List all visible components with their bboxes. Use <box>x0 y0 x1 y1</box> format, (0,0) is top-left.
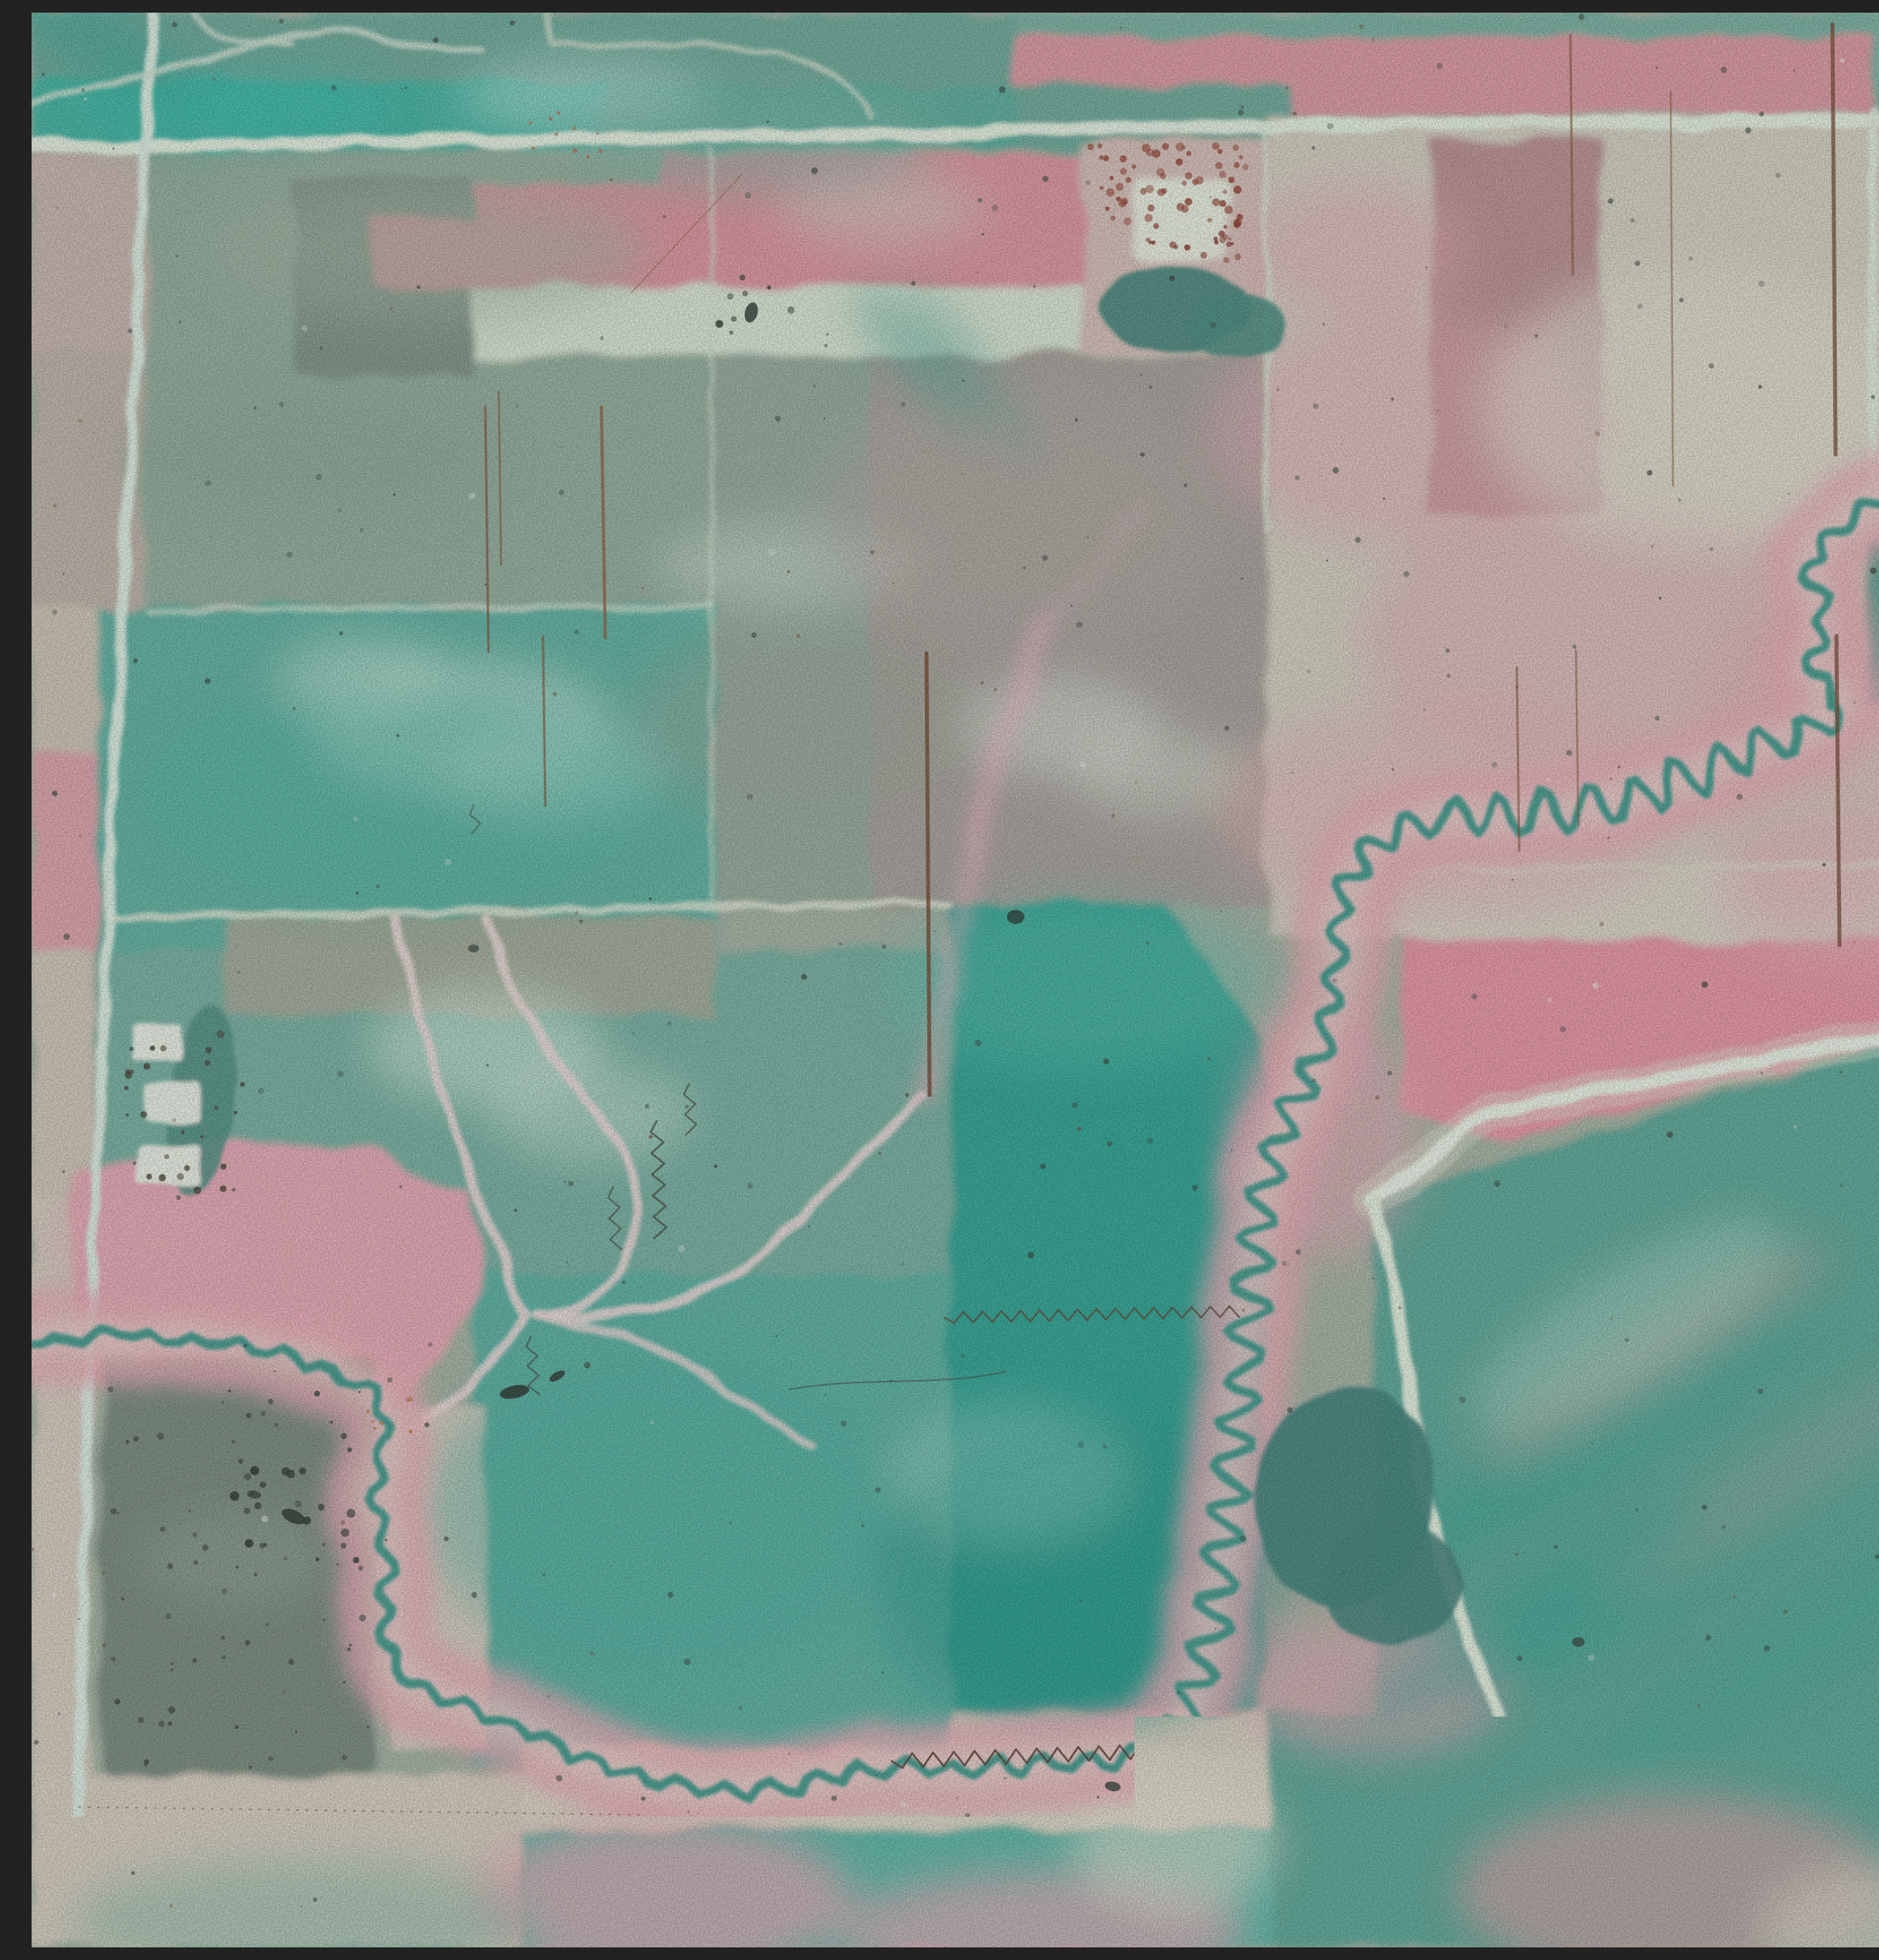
aerial-photo-canvas <box>32 13 1879 1947</box>
film-grain-light <box>32 13 1879 1947</box>
aerial-photo <box>32 13 1879 1947</box>
